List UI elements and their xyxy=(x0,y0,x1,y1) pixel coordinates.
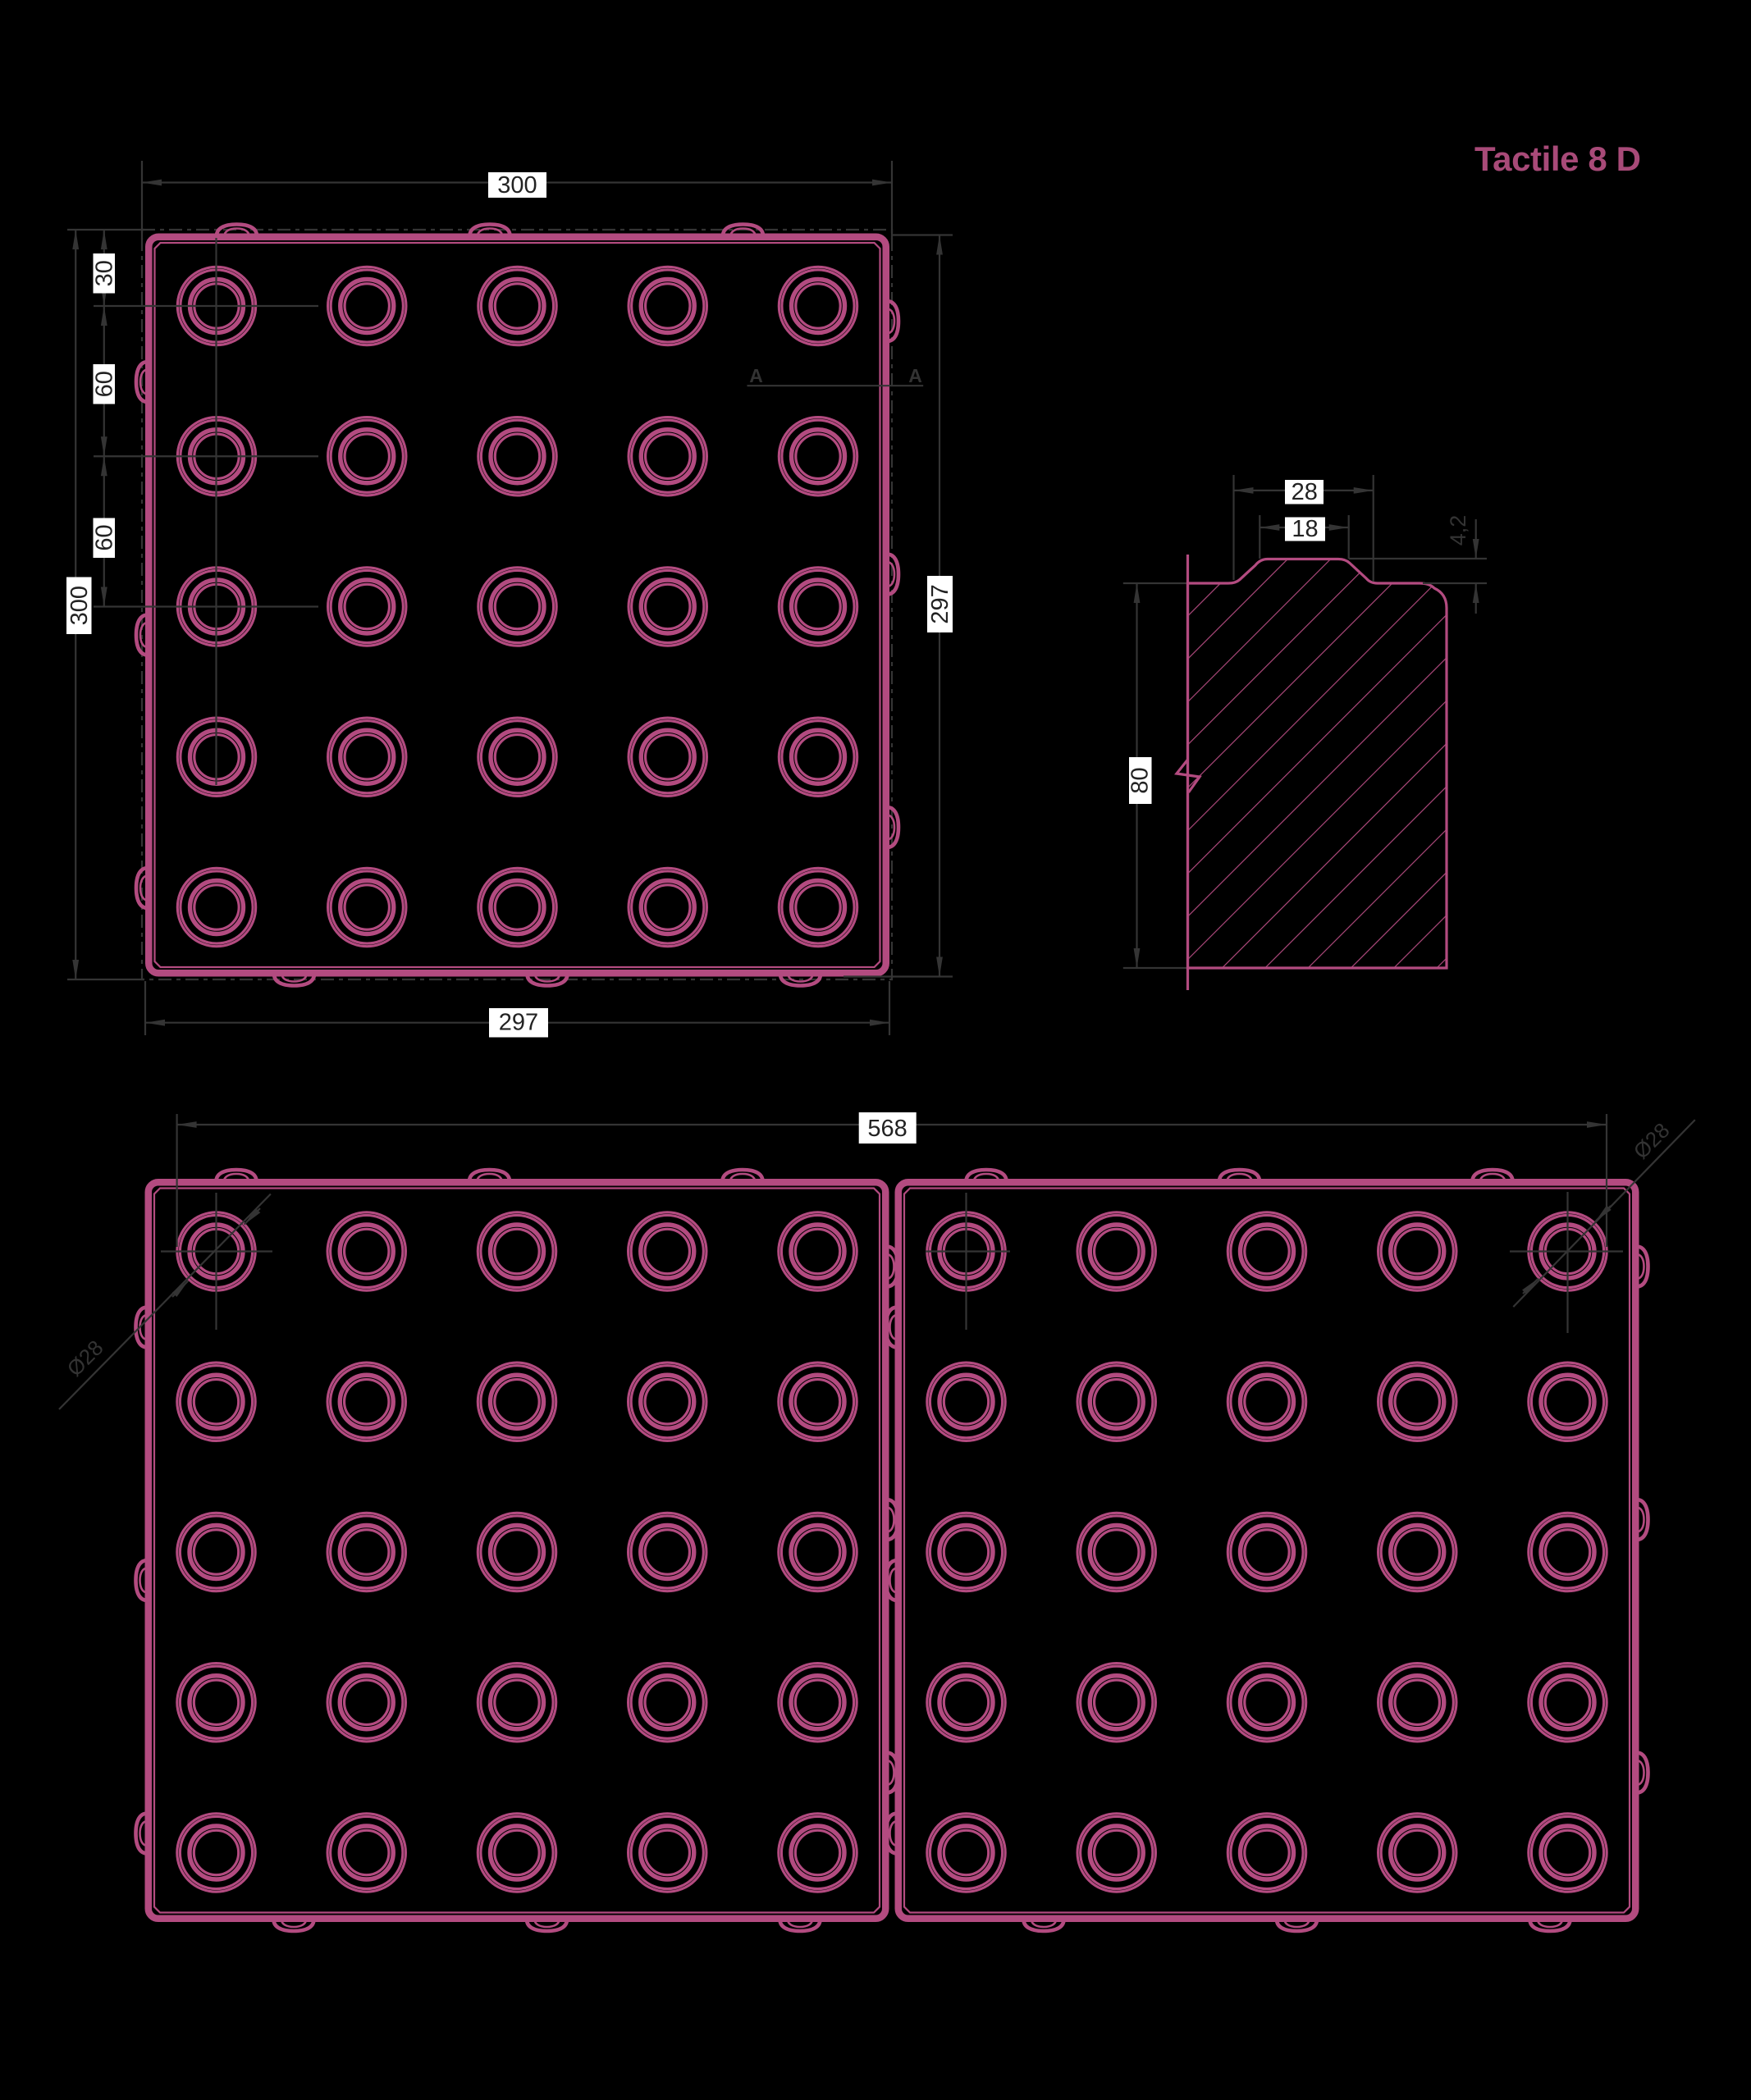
svg-text:A: A xyxy=(749,365,763,386)
svg-text:4,2: 4,2 xyxy=(1446,515,1470,546)
svg-text:30: 30 xyxy=(92,260,118,286)
svg-text:A: A xyxy=(908,365,922,386)
svg-text:60: 60 xyxy=(92,524,118,550)
svg-text:28: 28 xyxy=(1292,479,1318,505)
svg-text:Tactile 8 D: Tactile 8 D xyxy=(1474,139,1641,178)
svg-text:297: 297 xyxy=(927,584,953,623)
svg-text:568: 568 xyxy=(867,1116,907,1142)
svg-text:300: 300 xyxy=(66,586,93,625)
svg-text:300: 300 xyxy=(497,172,537,199)
svg-text:297: 297 xyxy=(499,1010,538,1036)
svg-text:80: 80 xyxy=(1127,767,1154,793)
svg-text:18: 18 xyxy=(1292,516,1318,542)
svg-text:60: 60 xyxy=(92,371,118,397)
